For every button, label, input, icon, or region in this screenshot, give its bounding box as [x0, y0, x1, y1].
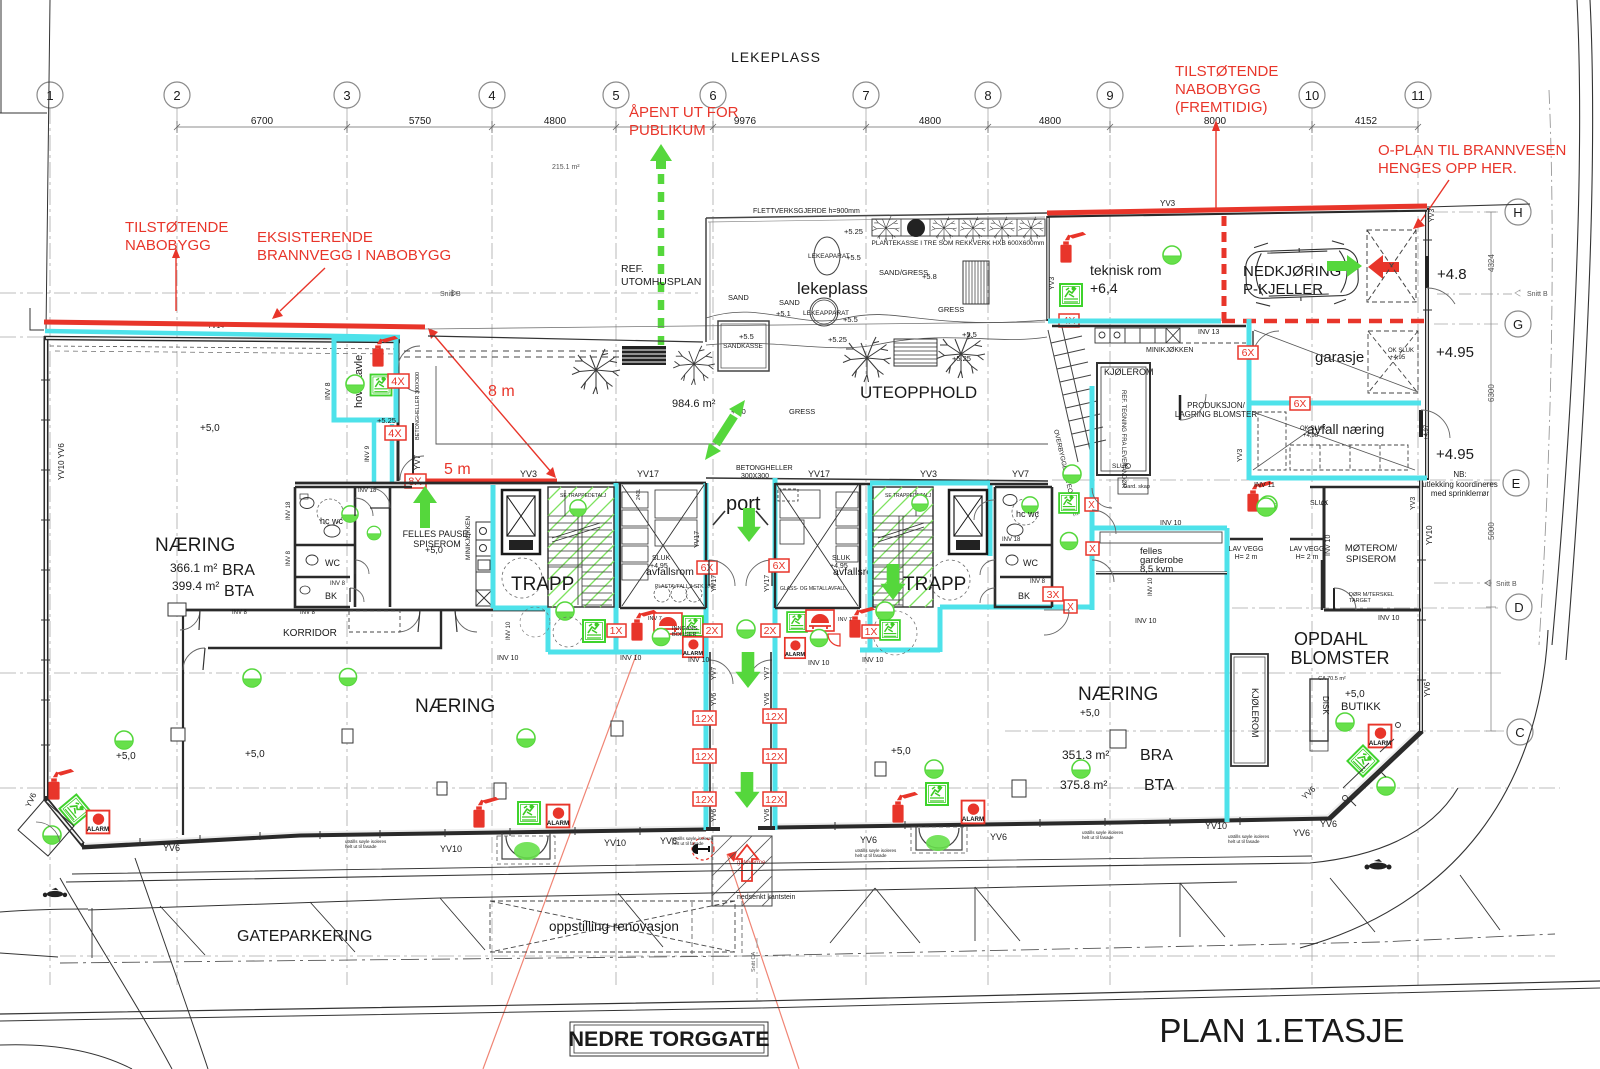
svg-text:YV17: YV17	[637, 469, 659, 479]
svg-text:YV6: YV6	[163, 843, 180, 853]
svg-text:H: H	[1513, 205, 1522, 220]
svg-text:4324: 4324	[1487, 254, 1496, 272]
svg-text:INV 10: INV 10	[1378, 615, 1400, 622]
svg-text:helt ut til fasade: helt ut til fasade	[1228, 839, 1260, 844]
svg-text:OK SLUK: OK SLUK	[1388, 348, 1414, 354]
svg-text:INV 10: INV 10	[808, 660, 830, 667]
svg-text:6X: 6X	[1294, 398, 1307, 410]
svg-text:BETONGHELLER: BETONGHELLER	[736, 465, 793, 472]
svg-text:YV3: YV3	[1410, 497, 1417, 510]
svg-text:YV6: YV6	[764, 693, 771, 706]
svg-text:+5.5: +5.5	[843, 315, 858, 324]
svg-text:TILSTØTENDE: TILSTØTENDE	[1175, 63, 1278, 80]
svg-text:LAGRING BLOMSTER: LAGRING BLOMSTER	[1175, 410, 1257, 419]
svg-text:KORRIDOR: KORRIDOR	[283, 628, 337, 639]
svg-text:YV10: YV10	[1205, 821, 1227, 831]
svg-text:8,5 kvm: 8,5 kvm	[1140, 564, 1173, 575]
svg-text:nedsenkt kantstein: nedsenkt kantstein	[737, 894, 795, 901]
svg-text:OPDAHL: OPDAHL	[1294, 629, 1368, 649]
svg-text:5750: 5750	[409, 116, 432, 127]
svg-text:YV17: YV17	[694, 531, 701, 548]
svg-text:FELLES PAUSE-: FELLES PAUSE-	[403, 529, 472, 539]
svg-text:MØTEROM/: MØTEROM/	[1345, 543, 1398, 554]
svg-text:YV6: YV6	[990, 832, 1007, 842]
svg-text:4800: 4800	[544, 116, 567, 127]
svg-text:H= 2 m: H= 2 m	[1235, 554, 1258, 561]
svg-text:O-PLAN TIL BRANNVESEN: O-PLAN TIL BRANNVESEN	[1378, 142, 1566, 159]
svg-text:ÅPENT UT FOR: ÅPENT UT FOR	[629, 104, 739, 121]
svg-text:Snitt B: Snitt B	[1496, 581, 1517, 588]
svg-text:INV 18: INV 18	[358, 488, 377, 494]
svg-text:12X: 12X	[765, 794, 784, 806]
svg-text:+5.5: +5.5	[846, 253, 861, 262]
svg-text:X: X	[1089, 544, 1096, 555]
svg-text:5000: 5000	[1487, 522, 1496, 540]
svg-text:6: 6	[709, 88, 716, 103]
svg-text:BTA: BTA	[1144, 777, 1174, 794]
svg-text:+6,4: +6,4	[1090, 280, 1118, 296]
svg-text:375.8 m²: 375.8 m²	[1060, 778, 1107, 792]
svg-text:+5.25: +5.25	[952, 354, 971, 363]
svg-text:INV 10: INV 10	[506, 621, 512, 640]
svg-text:4152: 4152	[1355, 116, 1378, 127]
svg-text:EKSISTERENDE: EKSISTERENDE	[257, 229, 373, 246]
svg-text:SPISEROM: SPISEROM	[1346, 554, 1396, 565]
svg-text:NÆRING: NÆRING	[155, 535, 235, 556]
svg-text:SE TRAPPEDETALJ: SE TRAPPEDETALJ	[560, 493, 607, 499]
svg-text:YV3: YV3	[1049, 277, 1056, 290]
svg-text:LEKEPLASS: LEKEPLASS	[731, 49, 821, 65]
svg-text:YV10: YV10	[440, 844, 462, 854]
svg-text:BRA: BRA	[1140, 747, 1173, 764]
svg-text:Gard. skap: Gard. skap	[1123, 484, 1150, 490]
svg-text:1X: 1X	[610, 625, 623, 637]
svg-text:1X: 1X	[865, 626, 878, 638]
svg-text:hc wc: hc wc	[320, 516, 344, 526]
svg-text:teknisk rom: teknisk rom	[1090, 262, 1162, 278]
svg-text:TRAPP: TRAPP	[903, 574, 966, 595]
svg-text:+4,98: +4,98	[1303, 433, 1319, 439]
svg-text:INV 8: INV 8	[286, 550, 292, 566]
svg-text:6300: 6300	[1487, 384, 1496, 402]
svg-text:+5.5: +5.5	[962, 330, 977, 339]
svg-text:YV10 YV6: YV10 YV6	[57, 443, 66, 480]
svg-text:P-KJELLER: P-KJELLER	[1243, 281, 1323, 298]
svg-text:C: C	[1515, 725, 1524, 740]
svg-text:YV6: YV6	[711, 693, 718, 706]
svg-text:PUBLIKUM: PUBLIKUM	[629, 122, 706, 139]
svg-text:TRAPP: TRAPP	[511, 574, 574, 595]
svg-text:5: 5	[612, 88, 619, 103]
svg-text:+5.1: +5.1	[776, 309, 791, 318]
svg-text:INV 7: INV 7	[838, 617, 852, 623]
svg-text:BRANNVEGG I NABOBYGG: BRANNVEGG I NABOBYGG	[257, 247, 451, 264]
svg-text:INV 11: INV 11	[1254, 482, 1275, 489]
svg-text:REF. TEGNING FRA LEVERANDØR: REF. TEGNING FRA LEVERANDØR	[1120, 390, 1126, 489]
svg-text:YV3: YV3	[920, 469, 937, 479]
svg-text:YV6: YV6	[1293, 828, 1310, 838]
svg-text:YV6: YV6	[1320, 819, 1337, 829]
svg-text:INV 10: INV 10	[1135, 618, 1157, 625]
svg-text:INV 18: INV 18	[286, 501, 292, 520]
svg-text:H= 2 m: H= 2 m	[1296, 554, 1319, 561]
svg-text:NEDKJØRING: NEDKJØRING	[1243, 263, 1341, 280]
svg-text:NEDRE TORGGATE: NEDRE TORGGATE	[568, 1027, 769, 1051]
svg-text:+4.95: +4.95	[1436, 344, 1474, 361]
svg-text:YV6: YV6	[764, 809, 771, 822]
svg-text:INV 8: INV 8	[232, 610, 248, 616]
svg-text:SANDKASSE: SANDKASSE	[723, 343, 763, 350]
svg-text:avfallsrom: avfallsrom	[646, 566, 694, 578]
svg-text:YV3: YV3	[1237, 449, 1244, 462]
svg-text:lekeplass: lekeplass	[797, 279, 868, 298]
svg-text:6700: 6700	[251, 116, 274, 127]
svg-text:YV17: YV17	[764, 575, 771, 592]
svg-text:G: G	[1513, 317, 1523, 332]
svg-text:Snitt B: Snitt B	[440, 291, 461, 298]
svg-text:INV 10: INV 10	[620, 655, 642, 662]
svg-text:+4,97: +4,97	[1424, 424, 1430, 440]
svg-text:6X: 6X	[701, 562, 714, 574]
svg-text:1: 1	[46, 88, 53, 103]
svg-text:+5,0: +5,0	[425, 545, 443, 555]
svg-text:10: 10	[1305, 88, 1319, 103]
svg-text:UTOMHUSPLAN: UTOMHUSPLAN	[621, 276, 701, 288]
svg-text:Snitt B: Snitt B	[1527, 291, 1548, 298]
svg-text:+5.25: +5.25	[377, 416, 396, 425]
svg-text:4X: 4X	[388, 428, 402, 440]
svg-text:+5,0: +5,0	[200, 423, 220, 434]
svg-text:8: 8	[984, 88, 991, 103]
svg-text:SLUK: SLUK	[832, 555, 851, 562]
svg-text:SAND/GRESS: SAND/GRESS	[879, 268, 928, 277]
svg-text:12X: 12X	[695, 794, 714, 806]
svg-text:INV 8: INV 8	[330, 581, 346, 587]
svg-text:BETONGHELLER 300X300: BETONGHELLER 300X300	[415, 372, 421, 440]
svg-text:+5,0: +5,0	[1080, 708, 1100, 719]
svg-text:GRESS: GRESS	[789, 407, 815, 416]
svg-text:PLANTEKASSE I TRE SOM REKKVERK: PLANTEKASSE I TRE SOM REKKVERK HXB 600X6…	[872, 240, 1045, 247]
svg-text:5 m: 5 m	[444, 461, 471, 478]
svg-text:3X: 3X	[1047, 589, 1060, 601]
svg-text:2X: 2X	[764, 625, 777, 637]
svg-text:BK: BK	[325, 591, 337, 601]
svg-text:PLAN 1.ETASJE: PLAN 1.ETASJE	[1159, 1012, 1404, 1049]
svg-text:12X: 12X	[695, 713, 714, 725]
svg-text:SAND: SAND	[779, 298, 800, 307]
svg-text:+4,95: +4,95	[1390, 355, 1406, 361]
svg-text:YV7: YV7	[711, 667, 718, 680]
svg-text:NABOBYGG: NABOBYGG	[1175, 81, 1261, 98]
svg-text:2: 2	[173, 88, 180, 103]
svg-text:YV10: YV10	[1425, 525, 1434, 545]
svg-text:BTA: BTA	[224, 583, 254, 600]
svg-text:215.1 m²: 215.1 m²	[552, 164, 580, 171]
svg-text:TARGET: TARGET	[1349, 598, 1372, 604]
svg-text:LEKEAPARAT: LEKEAPARAT	[808, 253, 850, 260]
svg-text:351.3 m²: 351.3 m²	[1062, 748, 1109, 762]
svg-text:YV3: YV3	[1160, 199, 1176, 208]
svg-text:utlekking koordineres: utlekking koordineres	[1422, 480, 1498, 489]
svg-text:NB:: NB:	[1453, 470, 1466, 479]
svg-text:UTEOPPHOLD: UTEOPPHOLD	[860, 383, 977, 402]
svg-text:INV 8: INV 8	[325, 382, 332, 400]
svg-text:YV7: YV7	[413, 454, 422, 470]
svg-text:12X: 12X	[765, 751, 784, 763]
svg-text:YV7: YV7	[764, 667, 771, 680]
svg-text:helt ut til fasade: helt ut til fasade	[855, 853, 887, 858]
svg-text:INV 10: INV 10	[688, 657, 710, 664]
svg-text:+5.25: +5.25	[844, 227, 863, 236]
svg-text:LAV VEGG: LAV VEGG	[1229, 546, 1264, 553]
svg-text:LAV VEGG: LAV VEGG	[1290, 546, 1325, 553]
svg-text:399.4 m²: 399.4 m²	[172, 579, 219, 593]
svg-text:GLASS- OG METALLAVFALL: GLASS- OG METALLAVFALL	[780, 586, 846, 592]
svg-text:BLOMSTER: BLOMSTER	[1290, 648, 1389, 668]
svg-text:4800: 4800	[919, 116, 942, 127]
svg-text:YV17: YV17	[711, 575, 718, 592]
svg-text:BK: BK	[1018, 591, 1030, 601]
svg-text:INV 18: INV 18	[1002, 537, 1021, 543]
svg-text:REF.: REF.	[621, 263, 644, 275]
svg-text:GRESS: GRESS	[938, 305, 964, 314]
svg-text:366.1 m²: 366.1 m²	[170, 561, 217, 575]
svg-text:YV6: YV6	[860, 835, 877, 845]
svg-text:NÆRING: NÆRING	[1078, 684, 1158, 705]
svg-text:INV 10: INV 10	[1148, 577, 1154, 596]
svg-text:WC: WC	[1023, 558, 1038, 568]
svg-text:BUTIKK: BUTIKK	[1341, 701, 1381, 713]
svg-text:YV17: YV17	[808, 469, 830, 479]
svg-text:4: 4	[488, 88, 495, 103]
svg-text:984.6 m²: 984.6 m²	[672, 398, 716, 410]
svg-text:NÆRING: NÆRING	[415, 696, 495, 717]
svg-text:(FREMTIDIG): (FREMTIDIG)	[1175, 99, 1267, 116]
svg-text:NABOBYGG: NABOBYGG	[125, 237, 211, 254]
svg-text:+5.5: +5.5	[739, 332, 754, 341]
svg-text:6X: 6X	[1242, 347, 1255, 359]
svg-text:hc wc: hc wc	[1016, 509, 1040, 519]
svg-text:YV10: YV10	[604, 838, 626, 848]
svg-text:+5,0: +5,0	[245, 749, 265, 760]
svg-text:E: E	[1512, 476, 1521, 491]
svg-text:7: 7	[862, 88, 869, 103]
svg-text:YV3: YV3	[520, 469, 537, 479]
svg-text:WC: WC	[325, 558, 340, 568]
svg-text:D: D	[1514, 600, 1523, 615]
svg-text:+4.8: +4.8	[1437, 266, 1467, 283]
svg-text:SLUK: SLUK	[652, 555, 671, 562]
svg-text:INV 10: INV 10	[862, 657, 884, 664]
svg-text:+5,0: +5,0	[891, 746, 911, 757]
svg-text:HENGES OPP HER.: HENGES OPP HER.	[1378, 160, 1517, 177]
svg-text:SAND: SAND	[728, 293, 749, 302]
svg-text:8 m: 8 m	[488, 383, 515, 400]
svg-text:MINIKJØKKEN: MINIKJØKKEN	[465, 516, 472, 560]
svg-text:300X300: 300X300	[741, 473, 769, 480]
svg-text:helt ut til fasade: helt ut til fasade	[345, 844, 377, 849]
svg-text:INV 9: INV 9	[364, 445, 371, 462]
svg-text:+5.25: +5.25	[828, 335, 847, 344]
svg-text:YV6: YV6	[1423, 681, 1432, 697]
svg-text:9: 9	[1106, 88, 1113, 103]
svg-text:INV 10: INV 10	[1325, 534, 1332, 556]
svg-text:BRA: BRA	[222, 562, 255, 579]
svg-text:PLASTAVFALL 3 STK 370L: PLASTAVFALL 3 STK 370L	[655, 584, 716, 590]
svg-text:INV 10: INV 10	[497, 655, 519, 662]
svg-text:helt ut til fasade: helt ut til fasade	[672, 841, 704, 846]
svg-text:KJØLEROM: KJØLEROM	[1104, 367, 1154, 377]
svg-text:3: 3	[343, 88, 350, 103]
svg-text:GATEPARKERING: GATEPARKERING	[237, 928, 372, 945]
svg-text:YV6: YV6	[711, 809, 718, 822]
svg-text:BOLIGER: BOLIGER	[672, 632, 696, 638]
svg-text:YV7: YV7	[1012, 469, 1029, 479]
svg-text:2X: 2X	[706, 625, 719, 637]
svg-text:4X: 4X	[391, 376, 405, 388]
svg-text:+5,0: +5,0	[1345, 689, 1365, 700]
svg-text:12X: 12X	[765, 711, 784, 723]
svg-text:X: X	[1067, 602, 1074, 613]
svg-text:+5,0: +5,0	[116, 751, 136, 762]
svg-text:INV 7: INV 7	[648, 616, 662, 622]
svg-text:INV 10: INV 10	[1160, 520, 1182, 527]
svg-text:Snitt CA: Snitt CA	[751, 951, 757, 972]
svg-text:INV 13: INV 13	[1198, 329, 1220, 336]
svg-text:garasje: garasje	[1315, 349, 1364, 366]
svg-text:TILSTØTENDE: TILSTØTENDE	[125, 219, 228, 236]
svg-text:YV3: YV3	[1429, 209, 1436, 222]
svg-text:+4.95: +4.95	[1436, 446, 1474, 463]
svg-text:DISK: DISK	[1321, 696, 1330, 715]
svg-text:INV 8: INV 8	[1030, 579, 1046, 585]
svg-text:OK SLUK: OK SLUK	[1300, 426, 1326, 432]
svg-text:11: 11	[1411, 88, 1425, 103]
svg-text:KJØLEROM: KJØLEROM	[1250, 688, 1260, 738]
svg-text:med sprinklerrør: med sprinklerrør	[1431, 489, 1490, 498]
svg-text:MINIKJØKKEN: MINIKJØKKEN	[1146, 347, 1193, 354]
svg-text:oppstilling renovasjon: oppstilling renovasjon	[549, 919, 679, 934]
svg-text:helt ut til fasade: helt ut til fasade	[1082, 835, 1114, 840]
svg-text:12X: 12X	[695, 751, 714, 763]
svg-text:X: X	[1088, 500, 1095, 511]
svg-text:PRODUKSJON/: PRODUKSJON/	[1187, 401, 1246, 410]
svg-text:4800: 4800	[1039, 116, 1062, 127]
svg-text:FLETTVERKSGJERDE h=900mm: FLETTVERKSGJERDE h=900mm	[753, 208, 860, 215]
svg-text:240L: 240L	[636, 489, 642, 500]
svg-text:6X: 6X	[773, 560, 786, 572]
